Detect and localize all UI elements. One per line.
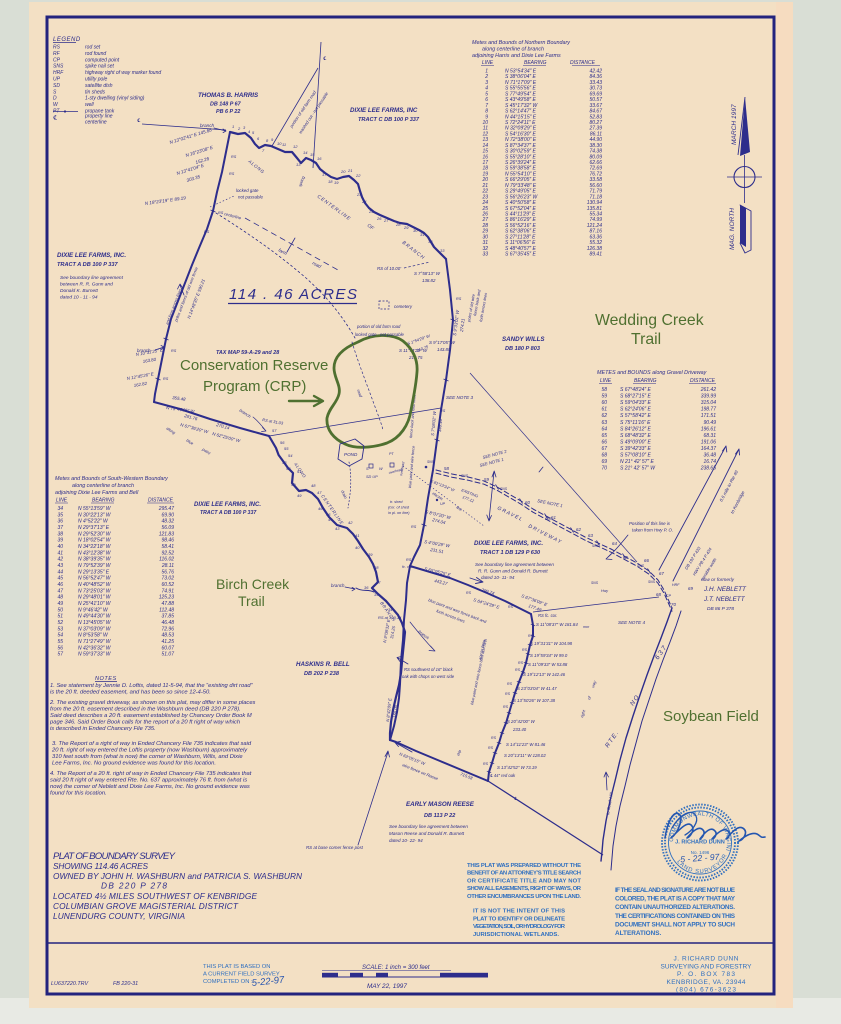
svg-text:90.49: 90.49 [703,420,716,426]
svg-text:N 21° 42′ 57″ E: N 21° 42′ 57″ E [620,459,655,465]
svg-text:RS fc. cor.: RS fc. cor. [538,613,557,618]
svg-text:RS: RS [231,155,237,159]
svg-text:TRACT 1 DB 129 P 630: TRACT 1 DB 129 P 630 [480,550,541,556]
svg-text:ALTERATIONS.: ALTERATIONS. [615,930,661,937]
svg-text:4. The Report of a 20 ft. righ: 4. The Report of a 20 ft. right of way i… [50,771,252,777]
svg-text:S 14°11′23″ W 81.46: S 14°11′23″ W 81.46 [506,742,546,747]
svg-text:SD: SD [53,83,60,89]
svg-text:RS: RS [406,558,412,562]
svg-text:RS: RS [522,648,528,652]
svg-text:48: 48 [311,483,316,488]
svg-text:56: 56 [280,440,285,445]
svg-text:SNS: SNS [53,64,64,70]
svg-text:143.80: 143.80 [437,347,451,352]
svg-text:26: 26 [376,216,382,221]
svg-text:METES and BOUNDS along Gravel: METES and BOUNDS along Gravel Driveway [597,370,707,376]
svg-text:SHOW ALL EASEMENTS, RIGHT OF W: SHOW ALL EASEMENTS, RIGHT OF WAYS, OR [467,886,582,892]
svg-text:12: 12 [293,144,298,149]
svg-text:34: 34 [57,506,63,512]
svg-text:63: 63 [601,420,607,426]
svg-text:S 68°27′15″ E: S 68°27′15″ E [620,394,652,400]
svg-text:TRACT A DB 100 P 337: TRACT A DB 100 P 337 [200,510,257,516]
svg-text:51: 51 [57,614,63,620]
svg-text:MAY 22, 1997: MAY 22, 1997 [367,983,407,990]
svg-text:196.61: 196.61 [701,426,717,432]
svg-text:RS: RS [204,230,210,234]
svg-text:Said deed describes a 20 ft. e: Said deed describes a 20 ft. easement es… [50,713,252,719]
svg-text:57: 57 [272,428,277,433]
svg-text:39: 39 [368,552,373,557]
svg-text:SNS: SNS [648,580,656,584]
svg-text:COLUMBIAN GROVE MAGISTERIAL DI: COLUMBIAN GROVE MAGISTERIAL DISTRICT [53,901,239,911]
svg-text:SNS: SNS [591,581,599,585]
svg-text:47: 47 [57,588,63,594]
svg-text:taken from Hwy P. O.: taken from Hwy P. O. [632,528,673,533]
svg-text:LINE: LINE [56,498,68,504]
svg-text:DOCUMENT SHALL NOT APPLY T: DOCUMENT SHALL NOT APPLY TO SUCH [615,921,735,928]
svg-text:62: 62 [576,527,581,532]
svg-text:43: 43 [57,563,63,569]
svg-text:branch: branch [200,123,214,128]
svg-text:27: 27 [383,218,389,223]
svg-text:29: 29 [403,225,409,230]
svg-text:36.48: 36.48 [703,453,716,459]
svg-text:DISTANCE: DISTANCE [570,60,596,66]
svg-text:S 11°08′37″ W 181.84: S 11°08′37″ W 181.84 [536,622,578,627]
svg-text:page 346. Said Order Book call: page 346. Said Order Book calls for the … [49,720,240,726]
svg-text:LEGEND: LEGEND [53,37,81,43]
svg-text:37.85: 37.85 [161,614,174,620]
svg-text:S 59°04′33″ E: S 59°04′33″ E [620,400,652,406]
svg-text:N 34°22′18″ W: N 34°22′18″ W [78,544,112,550]
svg-text:KENBRIDGE, VA. 23944: KENBRIDGE, VA. 23944 [667,979,746,986]
svg-text:N 43°12′38″ W: N 43°12′38″ W [78,550,112,556]
svg-text:47: 47 [317,490,322,495]
svg-text:21: 21 [347,168,352,173]
svg-text:℄: ℄ [514,796,517,801]
svg-text:THIS PLAT WAS PREPARED WITHOUT: THIS PLAT WAS PREPARED WITHOUT THE [467,863,581,869]
svg-text:233.40: 233.40 [512,727,527,732]
svg-text:RS: RS [163,377,169,381]
svg-text:70: 70 [671,602,676,607]
svg-text:46.48: 46.48 [161,620,174,626]
svg-text:164.37: 164.37 [701,446,717,452]
svg-text:RS: RS [440,409,446,413]
svg-text:FB 220-31: FB 220-31 [113,981,138,987]
svg-text:N 13°45′05″ W: N 13°45′05″ W [78,620,112,626]
svg-text:SNS: SNS [427,460,435,464]
svg-text:60.52: 60.52 [161,582,174,588]
svg-text:Soybean Field: Soybean Field [663,708,759,725]
svg-text:℄: ℄ [53,114,57,121]
svg-text:N 55°13′59″ W: N 55°13′59″ W [78,506,112,512]
svg-text:DIXIE LEE FARMS, INC: DIXIE LEE FARMS, INC [350,107,418,114]
svg-text:38: 38 [374,565,379,570]
svg-text:S 67°48′24″ E: S 67°48′24″ E [620,387,652,393]
svg-text:N 49°44′30″ W: N 49°44′30″ W [78,614,112,620]
svg-text:J.H. NEBLETT: J.H. NEBLETT [703,586,747,593]
svg-text:DISTANCE: DISTANCE [148,498,174,504]
svg-text:48: 48 [57,595,63,601]
svg-text:RF: RF [53,51,61,57]
svg-text:69.90: 69.90 [161,512,174,518]
svg-text:S 11°09′33″ W 53.88: S 11°09′33″ W 53.88 [528,662,568,667]
svg-text:SNS: SNS [545,517,553,521]
svg-text:said 20 ft right of way entere: said 20 ft right of way entered Rte. No.… [50,778,247,784]
svg-text:112.48: 112.48 [159,607,174,613]
svg-text:SEE NOTE 3: SEE NOTE 3 [446,395,474,400]
svg-text:COLORED, THE PLAT IS A COPY TH: COLORED, THE PLAT IS A COPY THAT MAY [615,896,736,903]
svg-text:60: 60 [601,400,607,406]
svg-text:tin sheds: tin sheds [85,89,106,95]
svg-text:S 67°35′45″ E: S 67°35′45″ E [505,252,537,258]
svg-text:Trail: Trail [631,331,661,348]
svg-text:Program (CRP): Program (CRP) [203,378,306,395]
svg-text:CP: CP [53,57,61,63]
svg-text:33: 33 [440,248,445,253]
svg-text:36: 36 [364,585,369,590]
svg-text:66: 66 [601,439,607,445]
svg-text:highway right of way marker fo: highway right of way marker found [85,70,161,76]
svg-text:cemetery: cemetery [394,304,413,309]
svg-text:56: 56 [57,645,63,651]
svg-text:16: 16 [317,156,322,161]
svg-text:N 56°52′47″ W: N 56°52′47″ W [78,576,112,582]
svg-text:19: 19 [334,180,339,185]
svg-text:TRACT A DB 100 P 337: TRACT A DB 100 P 337 [57,262,119,268]
svg-text:RS: RS [528,634,534,638]
svg-text:RS: RS [515,668,521,672]
svg-text:11: 11 [282,142,286,147]
svg-text:20: 20 [340,169,346,174]
svg-text:138.82: 138.82 [422,278,436,283]
svg-text:dated 10- 22- 94: dated 10- 22- 94 [389,838,423,843]
svg-text:HRF: HRF [53,70,64,76]
svg-text:mor: mor [583,625,590,629]
svg-text:Position of this line is: Position of this line is [629,521,671,526]
svg-text:125.23: 125.23 [159,595,175,601]
svg-text:N 42°36′32″ W: N 42°36′32″ W [78,645,112,651]
svg-text:73.02: 73.02 [161,576,174,582]
svg-text:DISTANCE: DISTANCE [690,378,716,384]
svg-text:VEGETATION, SOIL, OR HYDROLOGY: VEGETATION, SOIL, OR HYDROLOGY FOR [473,924,566,930]
svg-text:24: 24 [361,199,367,204]
svg-text:36: 36 [57,519,63,525]
svg-text:THOMAS B. HARRIS: THOMAS B. HARRIS [198,92,259,99]
svg-text:N 40°48′52″ W: N 40°48′52″ W [78,582,112,588]
svg-text:32: 32 [428,239,433,244]
svg-text:54: 54 [57,633,63,639]
svg-text:(cor. of shed: (cor. of shed [388,506,410,510]
svg-text:SNS: SNS [500,487,508,491]
svg-text:LUNENDURG COUNTY, VIRGINIA: LUNENDURG COUNTY, VIRGINIA [53,911,185,921]
svg-text:52: 52 [57,620,63,626]
svg-text:N 18°02′54″ W: N 18°02′54″ W [78,538,112,544]
svg-text:R. R. Gunn and Donald R. Bur: R. R. Gunn and Donald R. Burnett [478,569,548,574]
svg-text:S 62°24′06″ E: S 62°24′06″ E [620,407,652,413]
svg-text:LINE: LINE [482,60,494,66]
svg-text:14: 14 [303,150,308,155]
svg-text:PLAT TO IDENTIFY OR DELINEATE: PLAT TO IDENTIFY OR DELINEATE [473,916,565,922]
svg-text:S 23°03′04″ W 41.47: S 23°03′04″ W 41.47 [517,686,557,691]
svg-text:S 19°59′34″ W 99.0: S 19°59′34″ W 99.0 [530,653,568,658]
svg-text:branch: branch [331,583,345,588]
svg-text:23: 23 [356,192,362,197]
svg-text:spike nail set: spike nail set [85,64,115,70]
svg-text:utility pole: utility pole [85,77,107,83]
svg-text:DIXIE LEE FARMS, INC.: DIXIE LEE FARMS, INC. [57,252,126,259]
svg-text:41: 41 [57,550,63,556]
svg-text:33: 33 [482,252,488,258]
svg-text:Donald K. Burnett: Donald K. Burnett [60,288,99,294]
svg-text:IT IS NOT THE INTENT OF THIS: IT IS NOT THE INTENT OF THIS [473,909,565,915]
svg-text:oak with chops on west side: oak with chops on west side [402,674,455,679]
svg-text:JURISDICTIONAL WETLANDS.: JURISDICTIONAL WETLANDS. [473,932,559,938]
svg-text:42: 42 [348,520,353,525]
svg-text:J.T. NEBLETT: J.T. NEBLETT [703,596,746,603]
svg-text:53: 53 [282,460,287,465]
svg-text:SANDY WILLS: SANDY WILLS [502,336,545,343]
svg-text:1. See statement by Jennie D.: 1. See statement by Jennie D. Loftis, da… [50,683,254,689]
svg-text:1-sty dwelling (vinyl siding): 1-sty dwelling (vinyl siding) [85,96,145,102]
svg-text:53: 53 [57,626,63,632]
svg-text:locked gate: locked gate [236,188,259,193]
svg-text:DB 86 P 378: DB 86 P 378 [707,606,734,612]
svg-text:41: 41 [355,533,359,538]
svg-text:SCALE: 1 inch = 300 feet: SCALE: 1 inch = 300 feet [362,965,430,971]
svg-text:TAX MAP 59-A-29 and 28: TAX MAP 59-A-29 and 28 [216,350,279,356]
svg-text:RS of 10.00': RS of 10.00' [377,266,401,271]
svg-text:Lee Farms, Inc. No ground evid: Lee Farms, Inc. No ground evidence was f… [52,761,216,767]
svg-text:Birch Creek: Birch Creek [216,576,290,592]
svg-text:54: 54 [288,453,293,458]
svg-text:HRF: HRF [672,583,680,587]
svg-text:38: 38 [57,531,63,537]
svg-text:45: 45 [57,576,63,582]
svg-text:116.02: 116.02 [159,557,174,563]
svg-text:17: 17 [322,172,327,177]
svg-text:RS: RS [518,661,524,665]
svg-text:rod set: rod set [85,45,101,51]
svg-text:46: 46 [57,582,63,588]
svg-text:Mason Reese and Donald R. Burn: Mason Reese and Donald R. Burnett [389,831,465,836]
svg-text:N 8°53′58″ W: N 8°53′58″ W [78,633,109,639]
svg-text:339.99: 339.99 [701,394,717,400]
svg-text:67: 67 [601,446,607,452]
svg-text:S 68°48′32″ E: S 68°48′32″ E [620,433,652,439]
svg-text:N 9°46′42″ W: N 9°46′42″ W [78,607,109,613]
svg-text:now) the corner of Neblett and: now) the corner of Neblett and Dixie Lee… [50,784,250,790]
svg-text:D: D [53,96,57,102]
svg-text:57: 57 [57,652,63,658]
svg-text:OTHER ENCUMBRANCES UPON THE: OTHER ENCUMBRANCES UPON THE LAND. [467,894,581,900]
svg-text:SNS: SNS [637,564,645,568]
svg-text:CONTAIN UNAUTHORIZED ALTERAT: CONTAIN UNAUTHORIZED ALTERATIONS. [615,904,735,911]
svg-text:dated 10- 11- 94: dated 10- 11- 94 [481,575,515,580]
svg-text:is the 20 ft. deeded easement,: is the 20 ft. deeded easement, and has b… [50,690,211,696]
svg-text:computed point: computed point [85,57,120,63]
svg-text:49: 49 [297,493,302,498]
svg-text:44: 44 [328,517,333,522]
svg-text:58.41: 58.41 [161,544,174,550]
svg-text:THIS PLAT IS BASED ON: THIS PLAT IS BASED ON [203,964,270,970]
svg-text:22: 22 [355,173,361,178]
svg-text:63: 63 [588,533,593,538]
svg-text:Conservation Reserve: Conservation Reserve [180,357,328,374]
svg-text:N 37°03′09″ W: N 37°03′09″ W [78,626,112,632]
svg-text:rod found: rod found [85,51,106,57]
svg-text:N 38°39′35″ W: N 38°39′35″ W [78,557,112,563]
svg-text:LINE: LINE [600,378,612,384]
svg-text:Wedding Creek: Wedding Creek [595,312,704,329]
svg-text:37: 37 [376,580,381,585]
svg-text:Metes and Bounds of South-West: Metes and Bounds of South-Western Bounda… [55,476,168,482]
svg-text:BEARING: BEARING [524,60,547,66]
svg-text:COMPLETED ON :: COMPLETED ON : [203,979,253,985]
svg-text:DB 113 P 22: DB 113 P 22 [424,813,456,819]
svg-text:(804) 676-3623: (804) 676-3623 [676,987,736,994]
svg-text:72.96: 72.96 [161,626,174,632]
svg-text:58: 58 [601,387,607,393]
svg-text:branch: branch [137,348,151,353]
svg-text:70: 70 [601,466,607,472]
svg-text:RS: RS [171,349,177,353]
svg-text:RS at base corner fence post: RS at base corner fence post [306,845,364,850]
svg-text:S 13°50′26″ W 107.38: S 13°50′26″ W 107.38 [513,698,556,703]
svg-text:N 30°22′13″ W: N 30°22′13″ W [78,512,112,518]
svg-text:N 29°13′35″ E: N 29°13′35″ E [78,569,110,575]
svg-text:S 21° 42′ 57″ W: S 21° 42′ 57″ W [620,466,656,472]
svg-text:adjoining Dixie Lee Farms and: adjoining Dixie Lee Farms and Bell [55,490,139,496]
svg-text:S 20°42′00″ W: S 20°42′00″ W [507,719,536,724]
svg-text:THE CERTIFICATIONS CONTAINED O: THE CERTIFICATIONS CONTAINED ON THIS [615,913,736,920]
svg-text:35: 35 [374,592,379,597]
svg-text:68.31: 68.31 [703,433,716,439]
svg-text:S 84°26′12″ E: S 84°26′12″ E [620,426,652,432]
svg-text:BEARING: BEARING [92,498,115,504]
svg-text:68: 68 [601,453,607,459]
svg-text:RS: RS [508,605,514,609]
svg-text:121.83: 121.83 [159,531,175,537]
svg-text:along centerline of branch: along centerline of branch [482,47,544,53]
svg-text:adjoining Harris and Dixie Lee: adjoining Harris and Dixie Lee Farms [472,53,561,59]
svg-text:portion of old farm road: portion of old farm road [356,324,401,329]
svg-text:DB 148 P 67: DB 148 P 67 [210,102,242,108]
svg-text:15: 15 [310,152,315,157]
svg-text:68: 68 [656,592,661,597]
svg-text:S 57°08′10″ E: S 57°08′10″ E [620,453,652,459]
svg-text:40: 40 [355,545,360,550]
svg-text:RS: RS [466,591,472,595]
svg-text:89.41: 89.41 [589,252,602,258]
svg-text:59: 59 [601,394,607,400]
svg-text:Metes and Bounds of Northern B: Metes and Bounds of Northern Boundary [472,40,570,46]
svg-text:W: W [379,467,383,471]
svg-text:See boundary line agreement: See boundary line agreement [60,275,124,281]
svg-text:60.07: 60.07 [161,645,174,651]
svg-text:51.07: 51.07 [161,652,174,658]
svg-text:56.76: 56.76 [161,569,174,575]
svg-text:59: 59 [484,477,489,482]
svg-text:SURVEYING AND FORESTRY: SURVEYING AND FORESTRY [661,963,753,970]
svg-text:35: 35 [57,512,63,518]
svg-text:65: 65 [601,433,607,439]
svg-text:18: 18 [328,179,333,184]
svg-text:S 39°42′33″ E: S 39°42′33″ E [620,446,652,452]
svg-text:S 19°12′13″ W 142.46: S 19°12′13″ W 142.46 [523,672,566,677]
svg-text:from the 20 ft. easement descr: from the 20 ft. easement described in th… [50,707,241,713]
svg-text:DB 220 P 278: DB 220 P 278 [101,881,167,891]
svg-text:LU637220.TRV: LU637220.TRV [51,981,89,987]
svg-text:between R. R. Gunn and: between R. R. Gunn and [60,282,113,288]
svg-text:RS: RS [488,746,494,750]
svg-text:13: 13 [296,162,301,167]
svg-text:61: 61 [601,407,607,413]
svg-text:30: 30 [413,228,418,233]
svg-text:58: 58 [444,466,449,471]
svg-text:69: 69 [688,586,693,591]
svg-text:74.91: 74.91 [161,588,174,594]
svg-text:RS at 390.14: RS at 390.14 [378,615,402,620]
svg-text:DIXIE LEE FARMS, INC.: DIXIE LEE FARMS, INC. [194,502,261,508]
svg-text:not passable: not passable [238,195,263,200]
svg-text:SEE NOTE 4: SEE NOTE 4 [618,620,646,625]
svg-text:98.46: 98.46 [161,538,174,544]
svg-text:locked gate - not passable: locked gate - not passable [355,332,405,337]
svg-text:S 19°31′31″ W 104.98: S 19°31′31″ W 104.98 [530,641,573,646]
svg-text:64: 64 [612,541,617,546]
svg-text:40: 40 [57,544,63,550]
svg-text:EARLY MASON REESE: EARLY MASON REESE [406,801,475,808]
svg-text:Hwy: Hwy [601,589,608,593]
svg-text:310 feet south from (what is n: 310 feet south from (what is now) the co… [52,754,243,760]
svg-text:S 75°11′16″ E: S 75°11′16″ E [620,420,651,426]
svg-text:3. The Report of a right of wa: 3. The Report of a right of way in Ended… [52,741,252,747]
svg-text:69: 69 [601,459,607,465]
svg-text:315.04: 315.04 [701,400,717,406]
svg-text:48.32: 48.32 [161,519,174,525]
svg-text:42: 42 [57,557,63,563]
svg-text:DB 180 P 803: DB 180 P 803 [505,346,541,352]
svg-text:41.25: 41.25 [161,639,174,645]
svg-text:S 9°17′05″ W: S 9°17′05″ W [429,340,456,345]
svg-text:UP: UP [440,502,446,506]
svg-text:is described in Ended Chancery: is described in Ended Chancery File 735. [50,726,156,732]
svg-text:20 ft. right of way entered th: 20 ft. right of way entered the Loftis p… [51,748,248,754]
svg-text:1: 1 [232,124,234,129]
svg-text:N 29°48′01″ W: N 29°48′01″ W [78,595,112,601]
svg-text:P. O. BOX 783: P. O. BOX 783 [677,971,735,978]
svg-text:198.77: 198.77 [701,407,717,413]
svg-text:RS: RS [503,705,509,709]
svg-text:171.51: 171.51 [701,413,717,419]
svg-text:67: 67 [659,571,664,576]
svg-text:See boundary line agreement be: See boundary line agreement between [389,824,468,829]
svg-text:261.42: 261.42 [700,387,717,393]
svg-text:S 7°58′13″ W: S 7°58′13″ W [414,271,441,276]
svg-text:MAG. NORTH: MAG. NORTH [729,208,736,250]
svg-text:28: 28 [395,222,401,227]
svg-text:POND: POND [344,452,358,457]
svg-text:OR CERTIFICATE TITLE AND M: OR CERTIFICATE TITLE AND MAY NOT [467,878,581,884]
svg-text:N 29°52′30″ W: N 29°52′30″ W [78,531,112,537]
svg-text:46: 46 [318,506,323,511]
svg-text:along centerline of branch: along centerline of branch [72,483,134,489]
svg-text:PT: PT [389,452,394,456]
svg-text:BENEFIT OF AN ATTORNEY’S TITLE: BENEFIT OF AN ATTORNEY’S TITLE SEARCH [467,871,581,877]
svg-text:HASKINS R. BELL: HASKINS R. BELL [296,661,350,668]
svg-text:N 79°52′39″ W: N 79°52′39″ W [78,563,112,569]
